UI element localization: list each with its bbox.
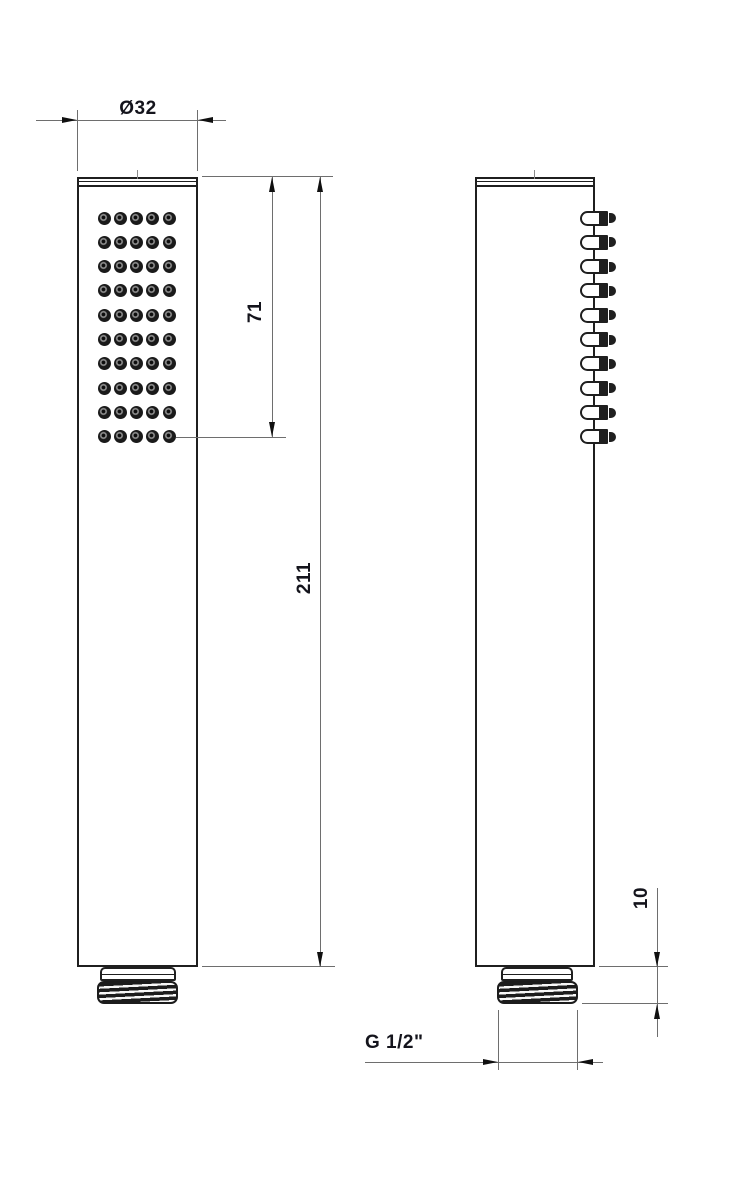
peg-tip [609,213,616,223]
nozzle-dot [98,309,111,322]
front-view-neck-line [102,974,174,975]
dim-spec-arrow-left [483,1059,498,1065]
peg-collar [599,356,608,371]
nozzle-dot [98,357,111,370]
nozzle-dot [163,382,176,395]
nozzle-peg [580,429,616,444]
front-view-thread-ridges [97,981,178,1004]
nozzle-dot [163,260,176,273]
dim-spec-arrow-right [578,1059,593,1065]
dim-face-extension-bottom [176,437,286,438]
peg-tip [609,262,616,272]
dim-face-line [272,177,273,437]
nozzle-dot [163,236,176,249]
dim-top-extension [202,176,333,177]
peg-collar [599,308,608,323]
dim-face-arrow-bottom [269,422,275,437]
peg-tip [609,237,616,247]
nozzle-dot [163,309,176,322]
dim-total-arrow-top [317,177,323,192]
nozzle-dot [98,406,111,419]
nozzle-peg [580,283,616,298]
dim-total-line [320,177,321,967]
peg-tip [609,432,616,442]
dim-total-arrow-bottom [317,952,323,967]
nozzle-peg [580,235,616,250]
dim-diameter-arrow-right [198,117,213,123]
nozzle-peg [580,356,616,371]
nozzle-peg [580,332,616,347]
front-view-cap-line-lower [79,185,196,187]
nozzle-dot [114,406,127,419]
nozzle-dot [163,357,176,370]
dim-spec-extension-left [498,1010,499,1070]
dim-thread-arrow-upper [654,952,660,967]
nozzle-dot [98,260,111,273]
nozzle-peg [580,381,616,396]
nozzle-dot [163,333,176,346]
dim-diameter-label: Ø32 [107,98,169,120]
dim-thread-arrow-lower [654,1004,660,1019]
nozzle-dot [163,212,176,225]
side-view-thread-ridges [497,981,578,1004]
nozzle-dot [146,309,159,322]
peg-collar [599,405,608,420]
peg-collar [599,381,608,396]
nozzle-dot [114,382,127,395]
nozzle-dot [130,236,143,249]
peg-tip [609,359,616,369]
peg-tip [609,286,616,296]
peg-collar [599,211,608,226]
nozzle-dot [98,382,111,395]
nozzle-dot [163,406,176,419]
dim-face-arrow-top [269,177,275,192]
nozzle-dot [98,236,111,249]
peg-tip [609,335,616,345]
side-view-center-tick [534,170,535,179]
nozzle-dot [114,260,127,273]
peg-collar [599,332,608,347]
nozzle-dot [114,236,127,249]
peg-collar [599,235,608,250]
nozzle-dot [130,309,143,322]
nozzle-dot [98,430,111,443]
front-view-cap-line-upper [79,181,196,182]
peg-collar [599,259,608,274]
dim-spec-label: G 1/2" [365,1032,423,1054]
dim-total-extension-bottom [202,966,335,967]
nozzle-dot [130,212,143,225]
front-view-center-tick [137,170,138,179]
side-view-neck-line [503,974,571,975]
peg-tip [609,383,616,393]
nozzle-dot [146,236,159,249]
peg-collar [599,429,608,444]
peg-collar [599,283,608,298]
nozzle-dot [146,212,159,225]
nozzle-peg [580,211,616,226]
nozzle-dot [163,284,176,297]
nozzle-peg [580,405,616,420]
nozzle-dot [98,284,111,297]
dim-total-label: 211 [295,553,315,603]
side-view-cap-line-lower [477,185,593,187]
dim-thread-label: 10 [632,878,652,918]
side-view-cap-line-upper [477,181,593,182]
nozzle-dot [146,382,159,395]
dim-face-label: 71 [246,292,266,332]
nozzle-peg [580,259,616,274]
nozzle-dot [114,212,127,225]
nozzle-dot [130,382,143,395]
nozzle-dot [98,212,111,225]
nozzle-dot [98,333,111,346]
peg-tip [609,310,616,320]
nozzle-dot [114,309,127,322]
peg-tip [609,408,616,418]
dim-diameter-arrow-left [62,117,77,123]
technical-drawing-canvas: Ø32 71 211 10 G 1/2" [0,0,730,1200]
side-view-body [475,177,595,967]
nozzle-dot [163,430,176,443]
nozzle-dot [114,333,127,346]
nozzle-peg [580,308,616,323]
